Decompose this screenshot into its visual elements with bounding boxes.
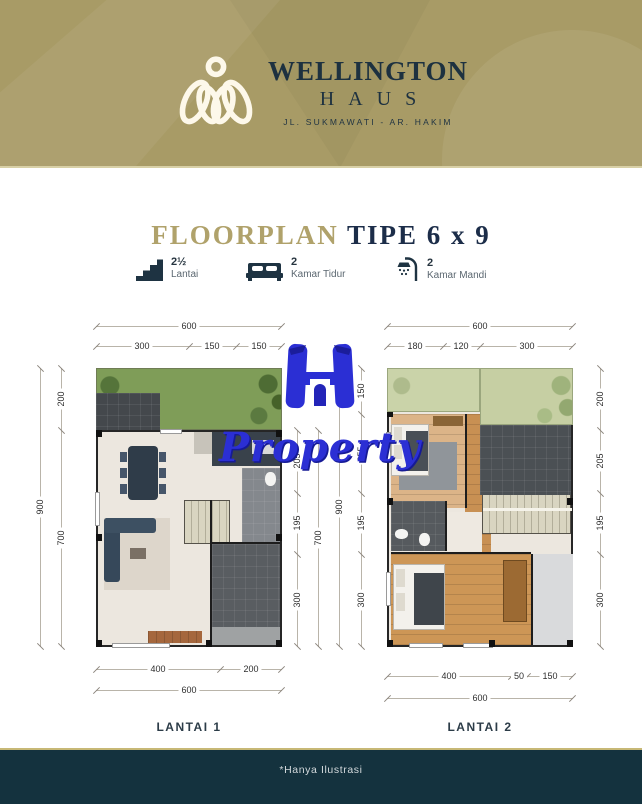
feature-value: 2 (427, 257, 486, 270)
brand-block: WELLINGTON HAUS JL. SUKMAWATI - AR. HAKI… (262, 56, 474, 127)
column (567, 498, 573, 505)
landing (447, 512, 482, 552)
pillow (396, 569, 405, 587)
stairs (184, 500, 230, 544)
column (96, 430, 102, 437)
feature-value: 2½ (171, 256, 198, 269)
dim-label: 600 (178, 684, 199, 696)
page-title-rest: TIPE 6 x 9 (339, 220, 491, 250)
sink (395, 529, 408, 539)
dim-label: 150 (201, 340, 222, 352)
dim-label: 400 (438, 670, 459, 682)
interior-wall (465, 414, 467, 508)
brand-address: JL. SUKMAWATI - AR. HAKIM (262, 117, 474, 127)
tv-cabinet (433, 416, 463, 426)
stair-landing-divider (483, 508, 572, 511)
chair (120, 484, 127, 494)
plan-name-lantai-1: LANTAI 1 (156, 720, 221, 734)
feature-label: Lantai (171, 269, 198, 281)
dim-label: 900 (333, 496, 345, 517)
bathroom-2 (391, 501, 447, 551)
dim-label: 205 (594, 450, 606, 471)
toilet (265, 472, 276, 486)
interior-wall (445, 501, 447, 551)
column (387, 498, 393, 505)
dining-area (120, 440, 166, 506)
floorplan-lantai-1 (96, 368, 282, 647)
dim-label: 195 (355, 512, 367, 533)
blanket (414, 573, 444, 625)
column (387, 640, 393, 647)
sofa-top (104, 518, 156, 533)
dim-label: 300 (131, 340, 152, 352)
page-title: FLOORPLAN TIPE 6 x 9 (0, 220, 642, 251)
balcony (531, 554, 573, 645)
dim-label: 200 (55, 388, 67, 409)
dim-label: 300 (594, 589, 606, 610)
interior-wall (210, 500, 212, 645)
wardrobe (503, 560, 527, 622)
dim-label: 50 (511, 670, 527, 682)
column (96, 534, 102, 541)
dim-label: 700 (55, 527, 67, 548)
flyer-page: WELLINGTON HAUS JL. SUKMAWATI - AR. HAKI… (0, 0, 642, 804)
bed (393, 564, 445, 630)
bedroom-2 (391, 414, 465, 508)
cabinet (194, 432, 212, 454)
pillow (396, 593, 405, 611)
dim-line (61, 368, 62, 647)
feature-label: Kamar Mandi (427, 270, 486, 282)
dim-label: 600 (469, 320, 490, 332)
dim-label: 600 (469, 692, 490, 704)
column (96, 640, 102, 647)
column (489, 640, 495, 647)
stove (252, 440, 274, 454)
feature-label: Kamar Tidur (291, 269, 345, 281)
dim-label: 200 (240, 663, 261, 675)
dim-label: 300 (291, 589, 303, 610)
dim-label: 150 (355, 380, 367, 401)
dim-label: 180 (404, 340, 425, 352)
dim-label: 205 (291, 450, 303, 471)
brand-subname: HAUS (262, 88, 474, 111)
dim-label: 150 (539, 670, 560, 682)
dim-label: 900 (34, 496, 46, 517)
column (276, 640, 282, 647)
driveway (212, 627, 280, 645)
dim-label: 200 (594, 388, 606, 409)
footer-disclaimer: *Hanya Ilustrasi (0, 764, 642, 776)
garden-patio (96, 393, 160, 430)
chair (159, 468, 166, 478)
column (567, 640, 573, 647)
chair (120, 452, 127, 462)
header-banner: WELLINGTON HAUS JL. SUKMAWATI - AR. HAKI… (0, 0, 642, 168)
dining-table (128, 446, 158, 500)
house-outline (96, 430, 282, 647)
roof-garden-left (387, 368, 480, 412)
dim-label: 195 (291, 512, 303, 533)
plan-name-lantai-2: LANTAI 2 (447, 720, 512, 734)
living-room-rug (104, 518, 170, 590)
feature-kamar-tidur: 2 Kamar Tidur (246, 256, 345, 281)
bed-icon (246, 260, 283, 281)
roof-garden-right (480, 368, 573, 425)
wellington-w-monogram-icon (176, 42, 256, 138)
dim-label: 400 (147, 663, 168, 675)
feature-kamar-mandi: 2 Kamar Mandi (394, 256, 486, 282)
stairs-icon (136, 258, 163, 281)
bed (391, 424, 429, 476)
page-title-accent: FLOORPLAN (151, 220, 339, 250)
dim-label: 255 (355, 443, 367, 464)
dim-label: 150 (248, 340, 269, 352)
interior-wall (212, 542, 280, 544)
door-mat (148, 631, 202, 643)
column (206, 640, 212, 647)
brand-name: WELLINGTON (262, 56, 474, 87)
feature-value: 2 (291, 256, 345, 269)
footer-bar: *Hanya Ilustrasi (0, 748, 642, 804)
interior-wall (391, 552, 531, 554)
chair (120, 468, 127, 478)
window (160, 429, 182, 434)
coffee-table (130, 548, 146, 559)
floorplan-lantai-2 (387, 368, 573, 647)
chair (159, 484, 166, 494)
dim-label: 195 (594, 512, 606, 533)
dim-label: 300 (355, 589, 367, 610)
header-divider (0, 166, 642, 168)
dim-label: 120 (450, 340, 471, 352)
dim-label: 300 (516, 340, 537, 352)
dim-label: 600 (178, 320, 199, 332)
pillow (394, 427, 402, 441)
window (386, 432, 391, 462)
roof-tile-area (480, 425, 571, 495)
feature-lantai: 2½ Lantai (136, 256, 198, 281)
shower-icon (394, 256, 419, 282)
column (276, 534, 282, 541)
bathroom-1 (242, 468, 280, 542)
kitchen-counter (212, 432, 280, 466)
toilet (419, 533, 430, 546)
column (276, 430, 282, 437)
dim-label: 700 (312, 527, 324, 548)
blanket (406, 431, 428, 471)
carport (212, 544, 280, 645)
chair (159, 452, 166, 462)
window (112, 643, 170, 648)
window (95, 492, 100, 526)
window (409, 643, 443, 648)
master-bedroom (391, 554, 531, 645)
window (386, 572, 391, 606)
pillow (394, 445, 402, 459)
